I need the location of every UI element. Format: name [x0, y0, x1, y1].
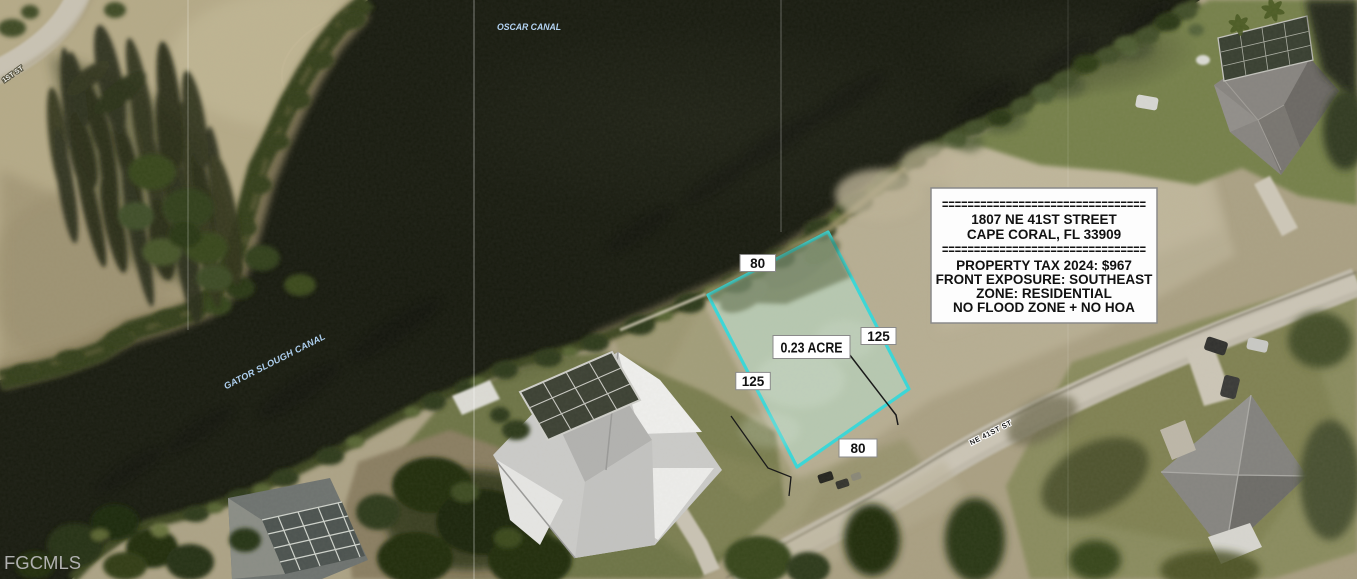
svg-text:FRONT EXPOSURE: SOUTHEAST: FRONT EXPOSURE: SOUTHEAST — [936, 272, 1154, 287]
svg-text:80: 80 — [750, 256, 765, 271]
svg-text:1807 NE 41ST STREET: 1807 NE 41ST STREET — [971, 212, 1117, 227]
svg-text:0.23 ACRE: 0.23 ACRE — [781, 341, 843, 357]
svg-text:NO FLOOD ZONE + NO HOA: NO FLOOD ZONE + NO HOA — [953, 300, 1135, 315]
svg-text:125: 125 — [867, 329, 890, 344]
svg-text:ZONE: RESIDENTIAL: ZONE: RESIDENTIAL — [976, 286, 1112, 301]
svg-text:==============================: ================================ — [942, 196, 1146, 212]
svg-text:OSCAR CANAL: OSCAR CANAL — [497, 22, 561, 33]
svg-text:125: 125 — [742, 374, 765, 389]
svg-text:==============================: ================================ — [942, 241, 1146, 257]
svg-text:FGCMLS: FGCMLS — [4, 552, 81, 573]
svg-text:CAPE CORAL, FL 33909: CAPE CORAL, FL 33909 — [967, 227, 1121, 242]
svg-text:PROPERTY TAX 2024: $967: PROPERTY TAX 2024: $967 — [956, 258, 1132, 273]
svg-text:80: 80 — [850, 441, 865, 456]
